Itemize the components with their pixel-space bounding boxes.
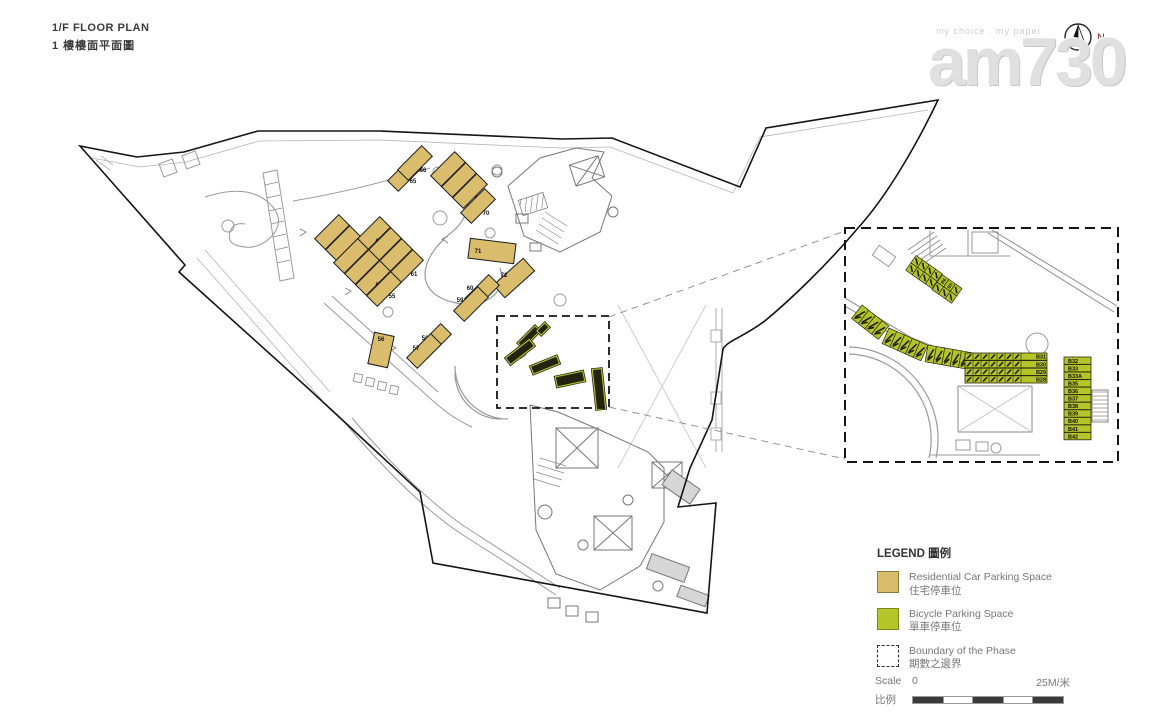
car-space-label: 59: [457, 298, 464, 304]
inset-bike-column-cell: B37: [1064, 395, 1091, 403]
inset-bike-column-cell: B41: [1064, 425, 1091, 433]
car-space-label: 56: [378, 337, 385, 343]
legend-item-boundary: Boundary of the Phase 期數之邊界: [877, 645, 1157, 672]
svg-text:B40: B40: [1068, 419, 1078, 425]
plan-title-zh: 1 樓樓面平面圖: [52, 37, 149, 53]
legend: LEGEND 圖例 Residential Car Parking Space …: [877, 545, 1157, 681]
boundary-swatch: [877, 645, 899, 667]
svg-text:B29: B29: [1036, 370, 1046, 376]
car-space-label: 66: [420, 168, 427, 174]
inset-bike-column-cell: B36: [1064, 387, 1091, 395]
bike-strip: [554, 370, 586, 388]
scale-label-zh: 比例: [875, 692, 912, 707]
car-parking-group: 505163A636261525353A55656667686970717260…: [315, 146, 535, 369]
svg-text:B42: B42: [1068, 434, 1078, 440]
legend-car-zh: 住宅停車位: [909, 584, 1052, 598]
bike-strip: [529, 355, 561, 376]
scale-bar-block: Scale 0 25M/米 比例: [875, 675, 1115, 707]
inset-bike-row: B31: [965, 353, 1047, 361]
svg-text:B33A: B33A: [1068, 374, 1082, 380]
legend-boundary-zh: 期數之邊界: [909, 657, 1016, 671]
inset-bike-strip: [882, 328, 928, 361]
legend-bike-zh: 單車停車位: [909, 620, 1013, 634]
inset-bike-parking-group: B6B5B31B30B29B28B32B33B33AB35B36B37B38B3…: [852, 255, 1091, 440]
scale-start-value: 0: [912, 675, 1012, 690]
inset-bike-column-cell: B39: [1064, 410, 1091, 418]
scale-bar: [912, 696, 1064, 704]
lower-tower-structure: [346, 405, 709, 622]
inset-bike-column-cell: B40: [1064, 417, 1091, 425]
inset-bike-row: B28: [965, 376, 1047, 384]
inset-bike-column-cell: B32: [1064, 357, 1091, 365]
car-parking-swatch: [877, 571, 899, 593]
legend-item-bike: Bicycle Parking Space 單車停車位: [877, 608, 1157, 635]
svg-text:B37: B37: [1068, 397, 1078, 403]
inset-bike-strip: [852, 305, 889, 339]
car-space-label: 70: [483, 211, 490, 217]
svg-text:B36: B36: [1068, 389, 1078, 395]
north-compass: N: [1065, 24, 1105, 50]
svg-text:B35: B35: [1068, 381, 1078, 387]
bike-parking-swatch: [877, 608, 899, 630]
svg-text:B28: B28: [1036, 378, 1046, 384]
car-space-label: 55: [389, 294, 396, 300]
legend-item-car: Residential Car Parking Space 住宅停車位: [877, 571, 1157, 598]
inset-bike-row: B30: [965, 361, 1047, 369]
legend-bike-en: Bicycle Parking Space: [909, 608, 1013, 621]
car-space-label: 72: [501, 273, 508, 279]
svg-text:B39: B39: [1068, 412, 1078, 418]
svg-text:B31: B31: [1036, 355, 1046, 361]
svg-text:B41: B41: [1068, 427, 1078, 433]
svg-text:B32: B32: [1068, 359, 1078, 365]
car-space-label: 65: [410, 179, 417, 185]
car-space-label: 57: [413, 346, 420, 352]
legend-heading: LEGEND 圖例: [877, 545, 1157, 561]
north-label: N: [1097, 32, 1105, 44]
inset-bike-column-cell: B38: [1064, 402, 1091, 410]
legend-car-en: Residential Car Parking Space: [909, 571, 1052, 584]
scale-end-value: 25M/米: [1012, 675, 1070, 690]
legend-boundary-en: Boundary of the Phase: [909, 645, 1016, 658]
inset-bike-column-cell: B35: [1064, 380, 1091, 388]
inset-bike-column-cell: B33: [1064, 365, 1091, 373]
svg-text:B38: B38: [1068, 404, 1078, 410]
car-space-label: 71: [475, 249, 482, 255]
bike-strip: [591, 368, 606, 411]
plan-title-en: 1/F FLOOR PLAN: [52, 22, 149, 34]
upper-core-structure: [492, 148, 618, 252]
car-space-label: 61: [411, 272, 418, 278]
inset-bike-column-cell: B42: [1064, 433, 1091, 441]
inset-bike-row: B29: [965, 368, 1047, 376]
plan-title: 1/F FLOOR PLAN 1 樓樓面平面圖: [52, 22, 149, 53]
bike-parking-group: [504, 322, 606, 411]
svg-text:B30: B30: [1036, 362, 1046, 368]
inset-bike-column-cell: B33A: [1064, 372, 1091, 380]
right-court-structure: [618, 305, 722, 468]
svg-text:B33: B33: [1068, 366, 1078, 372]
site-linework: [92, 110, 928, 427]
scale-label-en: Scale: [875, 675, 912, 690]
